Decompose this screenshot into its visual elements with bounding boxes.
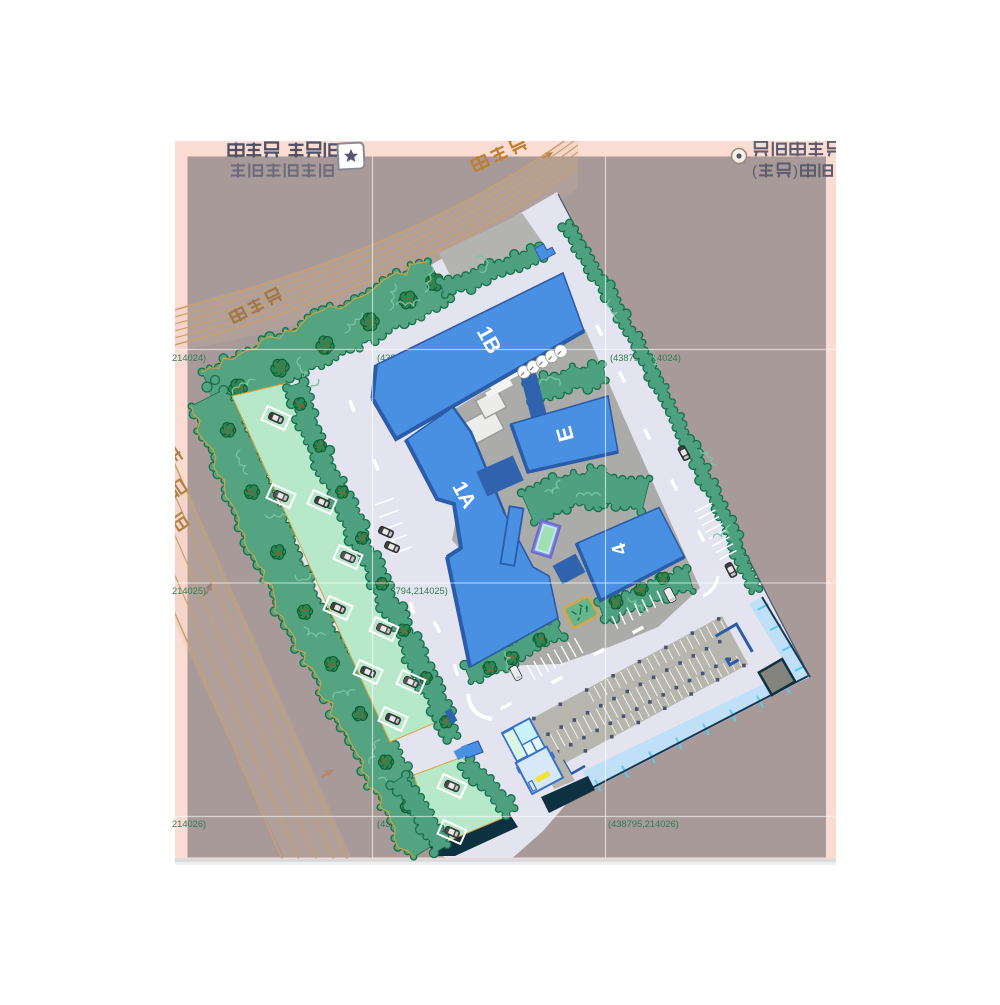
svg-text:214024): 214024) [172,353,206,363]
svg-text:214026): 214026) [172,819,206,829]
svg-text:(: ( [752,163,757,180]
svg-text:214025): 214025) [172,586,206,596]
svg-text:): ) [793,163,798,180]
svg-text:(438795,214026): (438795,214026) [608,819,679,829]
